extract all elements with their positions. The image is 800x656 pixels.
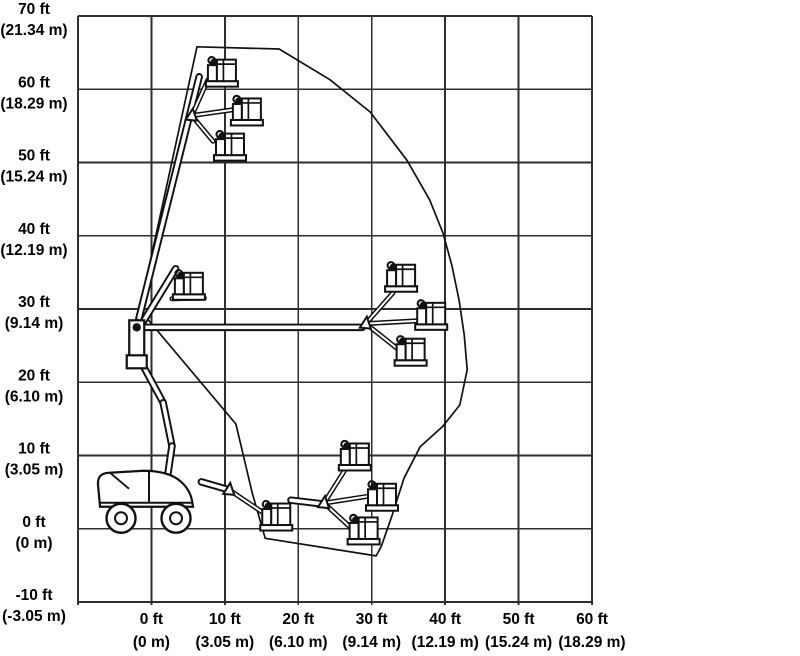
rotator-knob: [218, 133, 225, 140]
rotator-knob: [399, 338, 406, 345]
x-tick-feet: 30 ft: [356, 611, 388, 628]
basket-body: [426, 303, 445, 325]
rotator-knob: [177, 272, 184, 279]
basket-body: [396, 265, 415, 287]
y-tick-feet: 0 ft: [22, 514, 45, 531]
y-tick-feet: 10 ft: [18, 441, 50, 458]
basket-body: [359, 517, 378, 539]
y-tick-meters: (12.19 m): [0, 242, 67, 259]
y-tick-feet: 50 ft: [18, 148, 50, 165]
rotator-knob: [265, 502, 272, 509]
y-tick-meters: (3.05 m): [5, 462, 64, 479]
x-tick-feet: 20 ft: [282, 611, 314, 628]
chart-background: [0, 0, 800, 656]
y-tick-feet: 40 ft: [18, 221, 50, 238]
rotator-knob: [235, 97, 242, 104]
x-tick-meters: (12.19 m): [412, 634, 479, 651]
rotator-knob: [389, 264, 396, 271]
basket-rotator-bracket: [233, 104, 242, 120]
platform-basket-mid-left: [173, 270, 205, 300]
y-tick-meters: (15.24 m): [0, 169, 67, 186]
y-tick-meters: (0 m): [15, 535, 52, 552]
platform-basket-mid-right-upper: [385, 262, 417, 292]
basket-body: [184, 273, 203, 295]
rotator-knob: [352, 516, 359, 523]
platform-basket-mid-right-max-reach: [415, 300, 447, 330]
rotator-knob: [370, 483, 377, 490]
basket-rotator-bracket: [387, 270, 396, 286]
y-tick-feet: 30 ft: [18, 294, 50, 311]
rotator-knob: [210, 59, 217, 66]
y-tick-meters: (21.34 m): [0, 22, 67, 39]
wheel-hub: [115, 512, 127, 524]
basket-body: [350, 443, 369, 465]
y-tick-meters: (6.10 m): [5, 388, 64, 405]
basket-rotator-bracket: [368, 489, 377, 505]
y-tick-feet: 60 ft: [18, 74, 50, 91]
x-tick-feet: 60 ft: [576, 611, 608, 628]
basket-rotator-bracket: [262, 509, 271, 525]
basket-body: [217, 60, 236, 81]
basket-rotator-bracket: [350, 523, 359, 539]
x-tick-feet: 10 ft: [209, 611, 241, 628]
platform-basket-low-outreach: [366, 481, 398, 511]
y-tick-meters: (-3.05 m): [2, 608, 66, 625]
basket-body: [406, 339, 425, 361]
rotator-knob: [343, 442, 350, 449]
y-tick-feet: -10 ft: [15, 587, 52, 604]
x-tick-meters: (15.24 m): [485, 634, 552, 651]
x-tick-meters: (6.10 m): [269, 634, 328, 651]
wheel-hub: [170, 512, 182, 524]
basket-rotator-bracket: [208, 65, 217, 81]
platform-basket-up-max-height: [206, 57, 238, 87]
platform-basket-low-upper: [339, 441, 371, 471]
y-tick-meters: (9.14 m): [5, 315, 64, 332]
x-tick-feet: 50 ft: [503, 611, 535, 628]
basket-rotator-bracket: [216, 139, 225, 155]
x-tick-meters: (18.29 m): [558, 634, 625, 651]
x-tick-meters: (3.05 m): [196, 634, 255, 651]
platform-basket-low-below-grade: [348, 515, 380, 545]
y-tick-feet: 70 ft: [18, 1, 50, 18]
y-tick-meters: (18.29 m): [0, 95, 67, 112]
basket-rotator-bracket: [175, 278, 184, 294]
platform-basket-up-high-right: [231, 96, 263, 126]
y-tick-feet: 20 ft: [18, 367, 50, 384]
platform-basket-low-near-ground: [260, 501, 292, 531]
x-tick-feet: 0 ft: [140, 611, 163, 628]
basket-rotator-bracket: [341, 449, 350, 465]
chart-canvas: 70 ft(21.34 m)60 ft(18.29 m)50 ft(15.24 …: [0, 0, 800, 656]
boom-pivot: [133, 323, 141, 331]
platform-basket-mid-right-lower: [395, 336, 427, 366]
reach-of-motion-diagram: 70 ft(21.34 m)60 ft(18.29 m)50 ft(15.24 …: [0, 0, 800, 656]
counterweight: [127, 355, 147, 368]
platform-basket-up-high-lower: [214, 131, 246, 161]
x-tick-meters: (9.14 m): [342, 634, 401, 651]
basket-rotator-bracket: [397, 344, 406, 360]
x-tick-meters: (0 m): [133, 634, 170, 651]
basket-body: [242, 98, 261, 120]
basket-body: [225, 134, 244, 156]
x-tick-feet: 40 ft: [429, 611, 461, 628]
basket-body: [377, 484, 396, 506]
basket-rotator-bracket: [417, 308, 426, 324]
basket-body: [271, 504, 290, 526]
rotator-knob: [420, 302, 427, 309]
